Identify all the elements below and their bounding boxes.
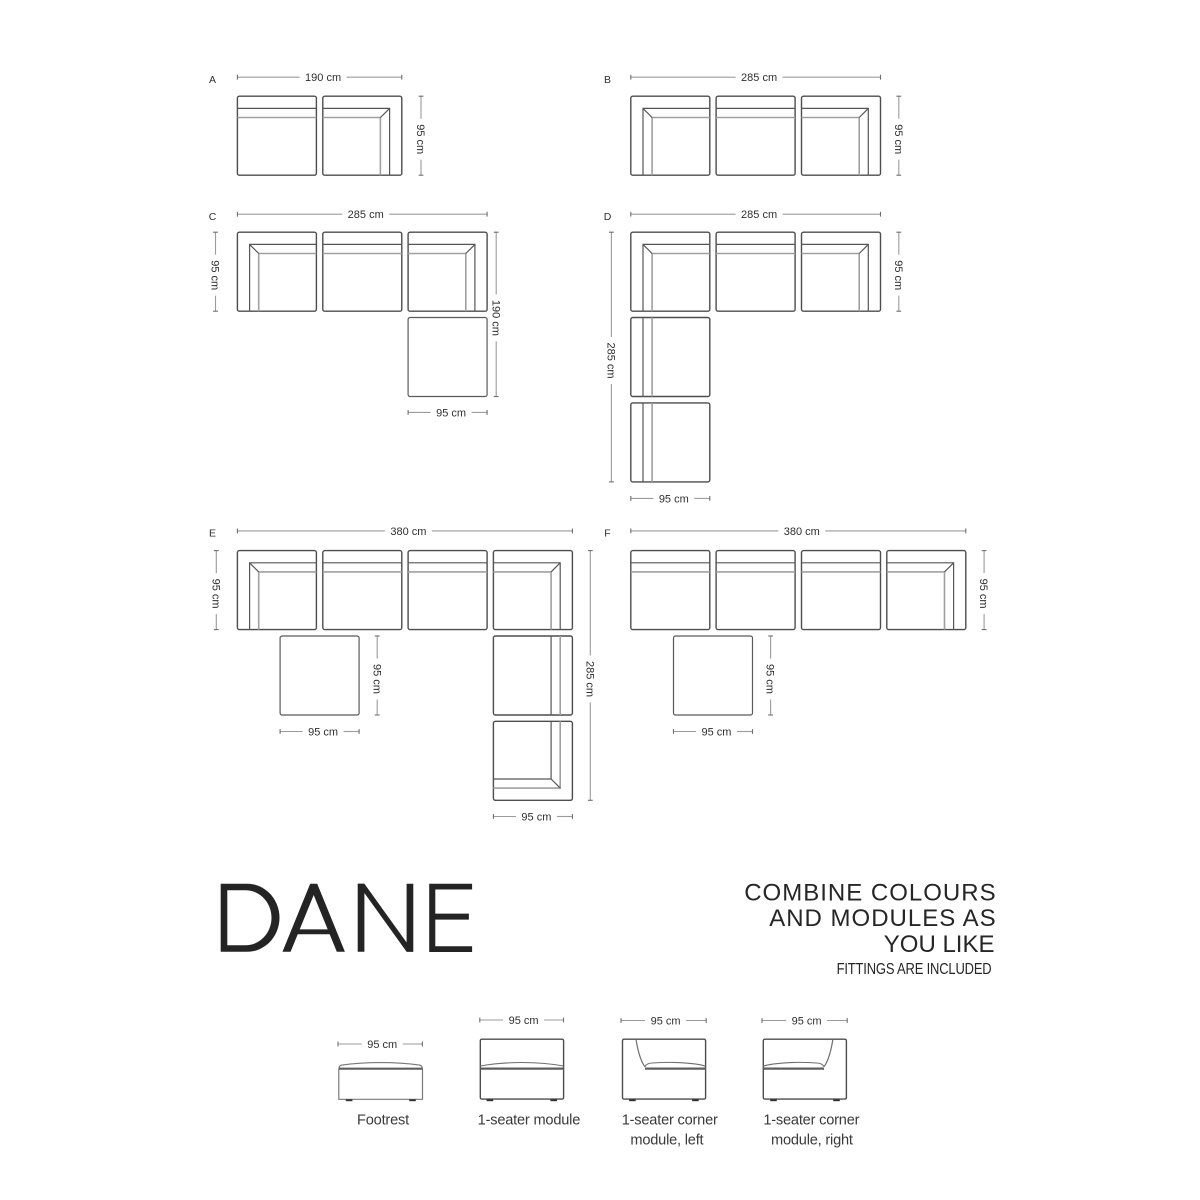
svg-text:95 cm: 95 cm [977, 579, 989, 609]
svg-text:190 cm: 190 cm [489, 300, 501, 336]
svg-text:95 cm: 95 cm [367, 1039, 397, 1051]
svg-text:95 cm: 95 cm [521, 811, 551, 823]
svg-text:95 cm: 95 cm [509, 1015, 539, 1027]
svg-text:FITTINGS ARE INCLUDED: FITTINGS ARE INCLUDED [837, 961, 992, 979]
svg-text:1-seater module: 1-seater module [478, 1113, 581, 1129]
svg-text:D: D [604, 211, 612, 223]
svg-text:module, left: module, left [630, 1132, 703, 1148]
svg-text:E: E [209, 528, 216, 540]
svg-text:95 cm: 95 cm [414, 124, 426, 154]
svg-text:95 cm: 95 cm [308, 726, 338, 738]
svg-text:190 cm: 190 cm [305, 72, 341, 84]
svg-text:B: B [604, 74, 611, 86]
svg-text:95 cm: 95 cm [792, 1015, 822, 1027]
svg-text:95 cm: 95 cm [764, 664, 776, 694]
svg-text:285 cm: 285 cm [741, 72, 777, 84]
svg-text:AND MODULES AS: AND MODULES AS [769, 905, 996, 932]
svg-text:285 cm: 285 cm [348, 209, 384, 221]
svg-text:95 cm: 95 cm [209, 260, 221, 290]
svg-text:COMBINE COLOURS: COMBINE COLOURS [744, 880, 996, 907]
svg-text:95 cm: 95 cm [370, 664, 382, 694]
svg-text:Footrest: Footrest [357, 1113, 409, 1129]
svg-text:285 cm: 285 cm [583, 661, 595, 697]
svg-text:A: A [209, 74, 216, 86]
svg-text:95 cm: 95 cm [436, 407, 466, 419]
svg-text:95 cm: 95 cm [659, 493, 689, 505]
svg-text:95 cm: 95 cm [209, 579, 221, 609]
svg-text:95 cm: 95 cm [702, 726, 732, 738]
svg-text:YOU LIKE: YOU LIKE [884, 931, 995, 958]
svg-text:95 cm: 95 cm [892, 124, 904, 154]
svg-text:380 cm: 380 cm [390, 526, 426, 538]
svg-text:95 cm: 95 cm [651, 1015, 681, 1027]
svg-text:285 cm: 285 cm [741, 209, 777, 221]
svg-text:1-seater corner: 1-seater corner [763, 1113, 859, 1129]
svg-text:380 cm: 380 cm [784, 526, 820, 538]
svg-text:F: F [604, 528, 610, 540]
svg-text:C: C [209, 211, 217, 223]
svg-text:1-seater corner: 1-seater corner [622, 1113, 718, 1129]
svg-text:285 cm: 285 cm [605, 342, 617, 378]
svg-text:95 cm: 95 cm [892, 260, 904, 290]
svg-text:module, right: module, right [771, 1132, 853, 1148]
